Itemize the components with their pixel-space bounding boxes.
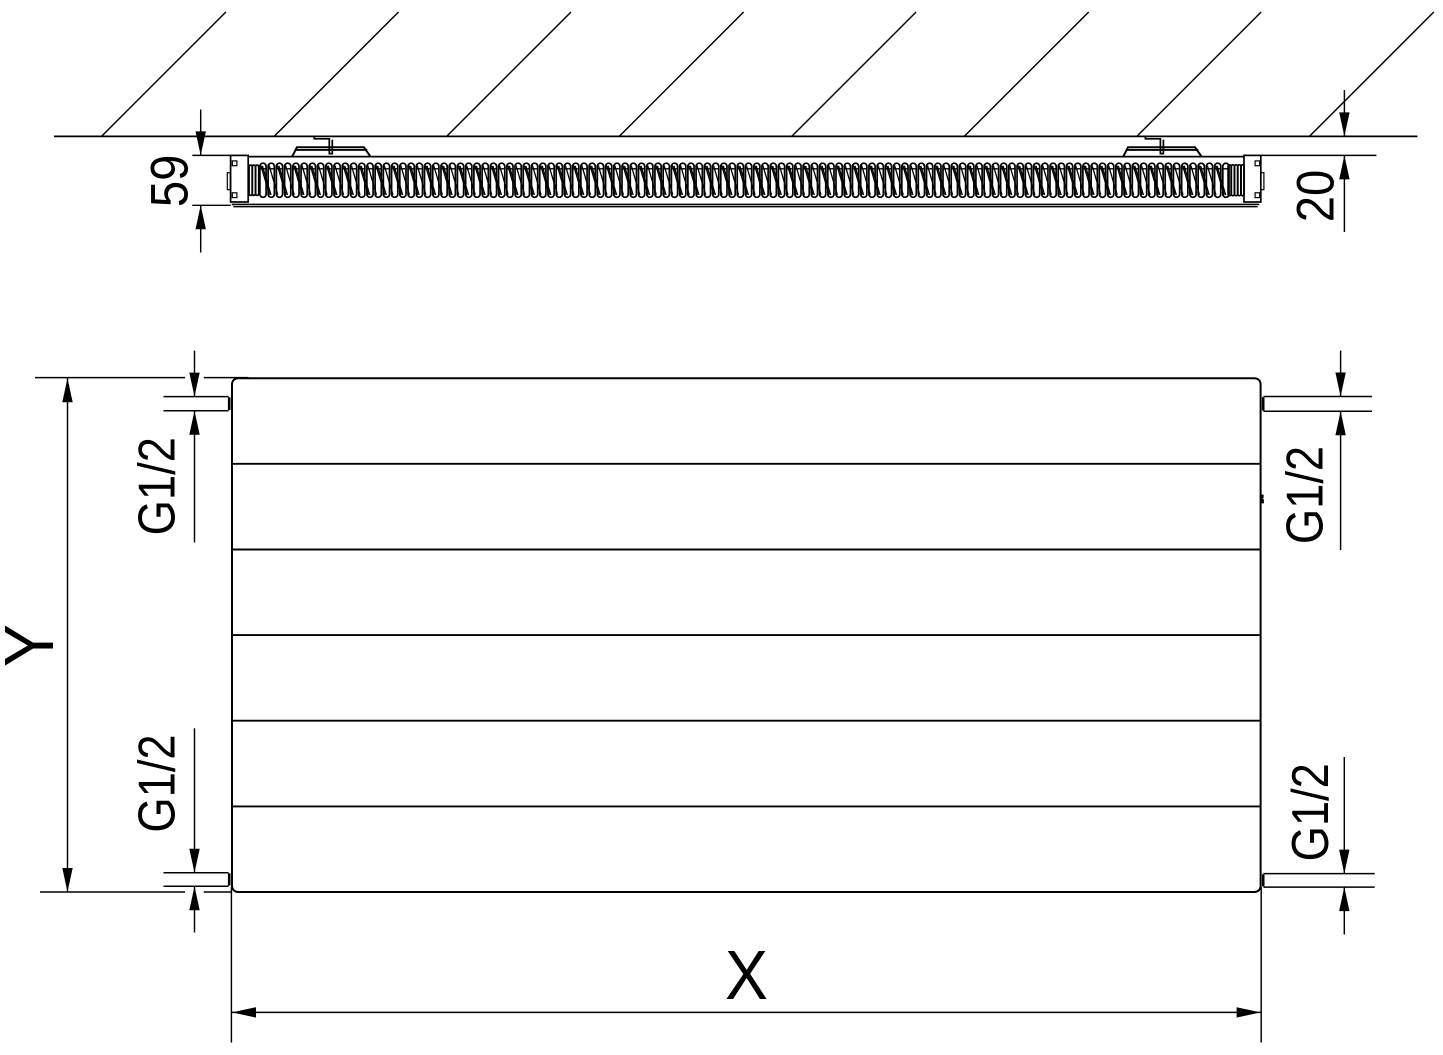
svg-text:20: 20 bbox=[1286, 170, 1345, 223]
svg-text:G1/2: G1/2 bbox=[129, 734, 186, 832]
svg-text:Y: Y bbox=[0, 624, 69, 667]
svg-text:X: X bbox=[725, 937, 768, 1015]
svg-text:G1/2: G1/2 bbox=[129, 437, 186, 535]
svg-text:G1/2: G1/2 bbox=[1277, 446, 1334, 544]
svg-text:G1/2: G1/2 bbox=[1282, 763, 1339, 861]
svg-text:59: 59 bbox=[140, 155, 199, 208]
